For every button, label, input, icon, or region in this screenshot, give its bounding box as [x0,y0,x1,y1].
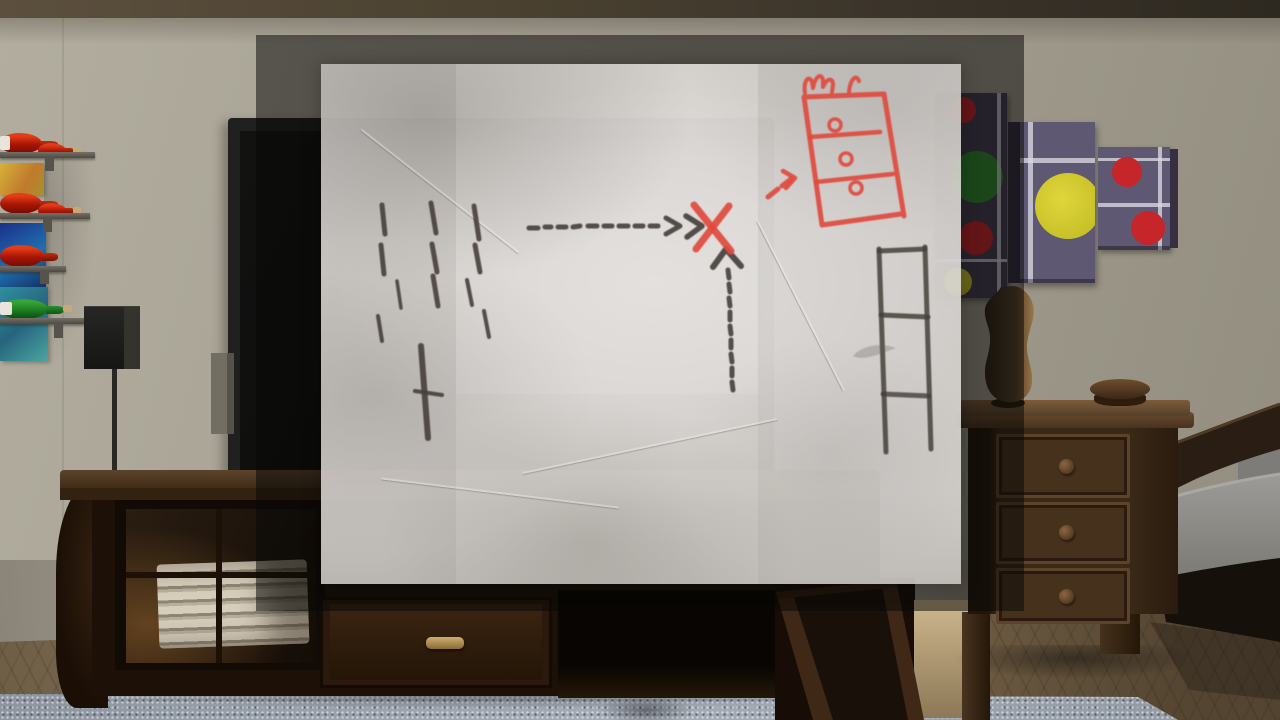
note-dash [474,206,479,239]
ladder-rail-right [925,247,931,449]
dresser-crown [805,76,833,93]
note-dash [433,276,438,306]
note-dash [728,270,729,278]
ladder-rung-mid [881,315,928,317]
note-dash [475,245,480,272]
note-dash [730,326,731,334]
arrow-up-chevron [713,249,741,267]
red-arrow-seg-1 [768,189,778,197]
note-dash [573,226,580,227]
ladder-rung-top [879,249,925,251]
note-drawing-svg [0,0,1280,720]
dresser-knob-1 [829,119,841,131]
pencil-smudge [853,345,896,358]
note-dash [432,244,437,272]
note-dash [382,205,385,234]
ladder-rung-low [883,394,929,396]
note-dash [729,284,730,292]
note-dash [415,391,442,395]
note-dash [732,382,733,390]
arrow-right-chevron-2 [686,216,702,237]
note-dash [378,316,382,341]
arrow-right-chevron-1 [666,218,680,234]
note-dash [397,281,401,308]
dresser-crown-right [849,78,859,92]
dresser-divider-1 [810,132,880,137]
dresser-knob-2 [840,153,852,165]
note-dash [731,354,732,362]
note-dash [431,203,436,233]
note-dash [467,280,472,305]
game-viewport [0,0,1280,720]
dresser-knob-3 [850,182,862,194]
note-dash [484,311,489,337]
note-dash [729,298,730,306]
dresser-outline [804,94,904,225]
note-strokes-group [378,76,931,452]
note-dash [381,245,384,274]
